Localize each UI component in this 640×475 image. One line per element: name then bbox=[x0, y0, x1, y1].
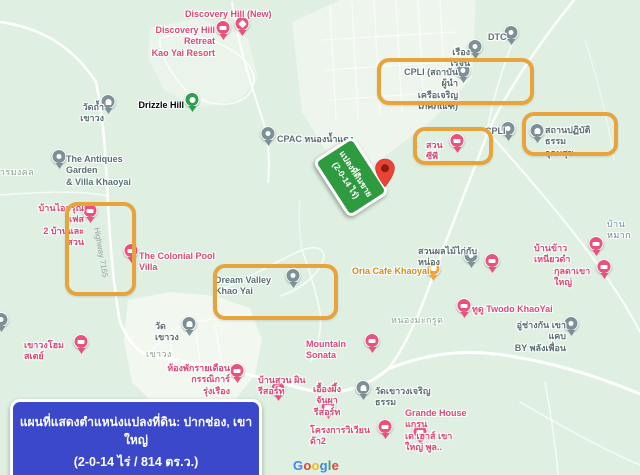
grande-house-khaoyai-label[interactable]: Grande House แกรน เด เฮาส์ เขาใหญ่ พูล.. bbox=[405, 408, 469, 453]
park-glyph bbox=[189, 97, 195, 103]
poi-glyph bbox=[473, 44, 478, 49]
lodging-glyph bbox=[489, 259, 496, 263]
lodging-glyph bbox=[382, 425, 389, 429]
poi-glyph bbox=[266, 131, 271, 136]
drizzle-hill-label[interactable]: Drizzle Hill bbox=[136, 100, 184, 111]
antiques-garden-villa-label[interactable]: The Antiques Garden & Villa Khaoyai bbox=[66, 154, 138, 188]
area-nong-makrut: หนองมะกรูด bbox=[391, 315, 443, 326]
pin-tail bbox=[488, 267, 496, 273]
wat-khao-wong-charoentham-label[interactable]: วัดเขาวงเจริญธรรม bbox=[375, 386, 439, 409]
pin-tail bbox=[359, 394, 367, 400]
cpac-nong-nam-daeng-pin[interactable] bbox=[261, 126, 276, 146]
highlight-suan-cp bbox=[413, 127, 493, 165]
poi-icon bbox=[261, 126, 276, 141]
lodging-icon bbox=[457, 298, 472, 313]
area-tharn-mongkol: ธารมงคล bbox=[0, 167, 34, 178]
area-khao-wong: เขาวง bbox=[146, 349, 172, 360]
wat-khao-wong-label[interactable]: วัดเขาวง bbox=[155, 321, 185, 344]
lodging-glyph bbox=[369, 339, 376, 343]
lodging-icon bbox=[230, 363, 245, 378]
ueang-phueng-chanpha-resort-label[interactable]: เอื้องผึ้ง จันผารีสอร์ท bbox=[304, 384, 350, 418]
baan-khao-niao-dam-label[interactable]: บ้านข้าวเหนียวดำ bbox=[534, 243, 592, 266]
wiwianda-project-pin[interactable] bbox=[378, 419, 393, 439]
poi-glyph bbox=[569, 321, 574, 326]
temple-glyph bbox=[105, 99, 111, 105]
lodging-icon bbox=[597, 259, 612, 274]
edge-cut-poi-pin[interactable] bbox=[0, 312, 9, 332]
pin-tail bbox=[381, 433, 389, 439]
road bbox=[520, 402, 640, 465]
dtc-label[interactable]: DTC bbox=[488, 32, 510, 43]
area-baan-mak: บ้านหมาก bbox=[607, 219, 640, 242]
road bbox=[545, 382, 558, 475]
monthly-room-kannika-pin[interactable] bbox=[230, 363, 245, 383]
wat-tham-khao-wong-label[interactable]: วัดถ้ำเขาวง bbox=[68, 102, 104, 125]
caption-line1: แผนที่แสดงตำแหน่งแปลงที่ดิน: ปากช่อง, เข… bbox=[19, 413, 253, 449]
temple-glyph bbox=[186, 321, 192, 327]
highlight-cpli-institute bbox=[377, 58, 534, 105]
lodging-glyph bbox=[220, 26, 227, 30]
park-icon bbox=[185, 92, 200, 107]
pin-tail bbox=[219, 34, 227, 40]
u-chang-kan-label[interactable]: อู่ช่างกัน เขาแคบ BY พลังเพื่อน bbox=[512, 320, 566, 354]
poi-glyph bbox=[0, 317, 4, 322]
kulda-khaoyai-pin[interactable] bbox=[597, 259, 612, 279]
poi-icon bbox=[52, 149, 67, 164]
google-logo-letter: g bbox=[320, 458, 328, 473]
twodo-khaoyai-pin[interactable] bbox=[457, 298, 472, 318]
pin-tail bbox=[104, 108, 112, 114]
highlight-meditation-center bbox=[522, 112, 618, 156]
unnamed-lodging-pin[interactable] bbox=[485, 253, 500, 273]
drizzle-hill-pin[interactable] bbox=[185, 92, 200, 112]
pin-tail bbox=[0, 326, 5, 332]
mountain-sonata-label[interactable]: Mountain Sonata bbox=[306, 339, 368, 362]
highlight-dream-valley bbox=[213, 264, 338, 320]
pin-tail bbox=[368, 347, 376, 353]
lodging-icon bbox=[378, 419, 393, 434]
highlight-baan-i-arun bbox=[65, 202, 136, 296]
pin-tail bbox=[600, 273, 608, 279]
road bbox=[299, 200, 302, 250]
temple-glyph bbox=[360, 385, 366, 391]
kulda-khaoyai-label[interactable]: กุลดาเขาใหญ่ bbox=[554, 266, 598, 289]
khao-wong-homestay-label[interactable]: เขาวงโฮมสเตย์ bbox=[24, 340, 76, 363]
discovery-hill-retreat-label[interactable]: Discovery Hill Retreat Kao Yai Resort bbox=[135, 25, 215, 59]
poi-icon bbox=[0, 312, 9, 327]
pin-tail bbox=[77, 348, 85, 354]
map-canvas[interactable]: Highway 7165 Discovery Hill (New)Discove… bbox=[0, 0, 640, 475]
pin-tail bbox=[264, 140, 272, 146]
google-logo-letter: G bbox=[293, 458, 303, 473]
lodging-icon bbox=[216, 20, 231, 35]
pin-tail bbox=[460, 312, 468, 318]
fruit-garden-kai-nong-label[interactable]: สวนผลไม้ไก่กับหน่อง bbox=[418, 246, 486, 269]
property-location-pin[interactable] bbox=[374, 158, 396, 188]
lodging-glyph bbox=[234, 369, 241, 373]
wat-khao-wong-charoentham-pin[interactable] bbox=[356, 380, 371, 400]
pin-tail bbox=[185, 330, 193, 336]
pin-tail bbox=[238, 30, 246, 36]
pin-tail bbox=[233, 377, 241, 383]
pin-tail bbox=[188, 106, 196, 112]
google-logo-letter: o bbox=[311, 458, 319, 473]
pin-tail bbox=[592, 250, 600, 256]
antiques-garden-villa-pin[interactable] bbox=[52, 149, 67, 169]
lodging-icon bbox=[485, 253, 500, 268]
pin-tail bbox=[55, 163, 63, 169]
lodging-glyph bbox=[601, 265, 608, 269]
lodging-glyph bbox=[78, 340, 85, 344]
google-logo-letter: e bbox=[332, 458, 339, 473]
temple-icon bbox=[356, 380, 371, 395]
poi-glyph bbox=[57, 154, 62, 159]
lodging-glyph bbox=[593, 242, 600, 246]
monthly-room-kannika-label[interactable]: ห้องพักรายเดือน กรรณิการ์รุ่งเรือง bbox=[166, 363, 230, 397]
caption-line2: (2-0-14 ไร่ / 814 ตร.ว.) bbox=[19, 452, 253, 472]
pin-tail bbox=[429, 275, 437, 281]
google-logo[interactable]: Google bbox=[293, 458, 339, 473]
twodo-khaoyai-label[interactable]: ทูดู Twodo KhaoYai bbox=[472, 304, 554, 315]
caption-banner: แผนที่แสดงตำแหน่งแปลงที่ดิน: ปากช่อง, เข… bbox=[10, 399, 262, 475]
discovery-hill-retreat-pin[interactable] bbox=[216, 20, 231, 40]
lodging-glyph bbox=[461, 304, 468, 308]
scenic-glyph bbox=[238, 19, 246, 27]
pin-tail bbox=[567, 330, 575, 336]
wiwianda-project-label[interactable]: โครงการวิเวียนด้า2 bbox=[310, 425, 376, 448]
road bbox=[0, 192, 108, 196]
discovery-hill-new-label[interactable]: Discovery Hill (New) bbox=[185, 9, 275, 20]
